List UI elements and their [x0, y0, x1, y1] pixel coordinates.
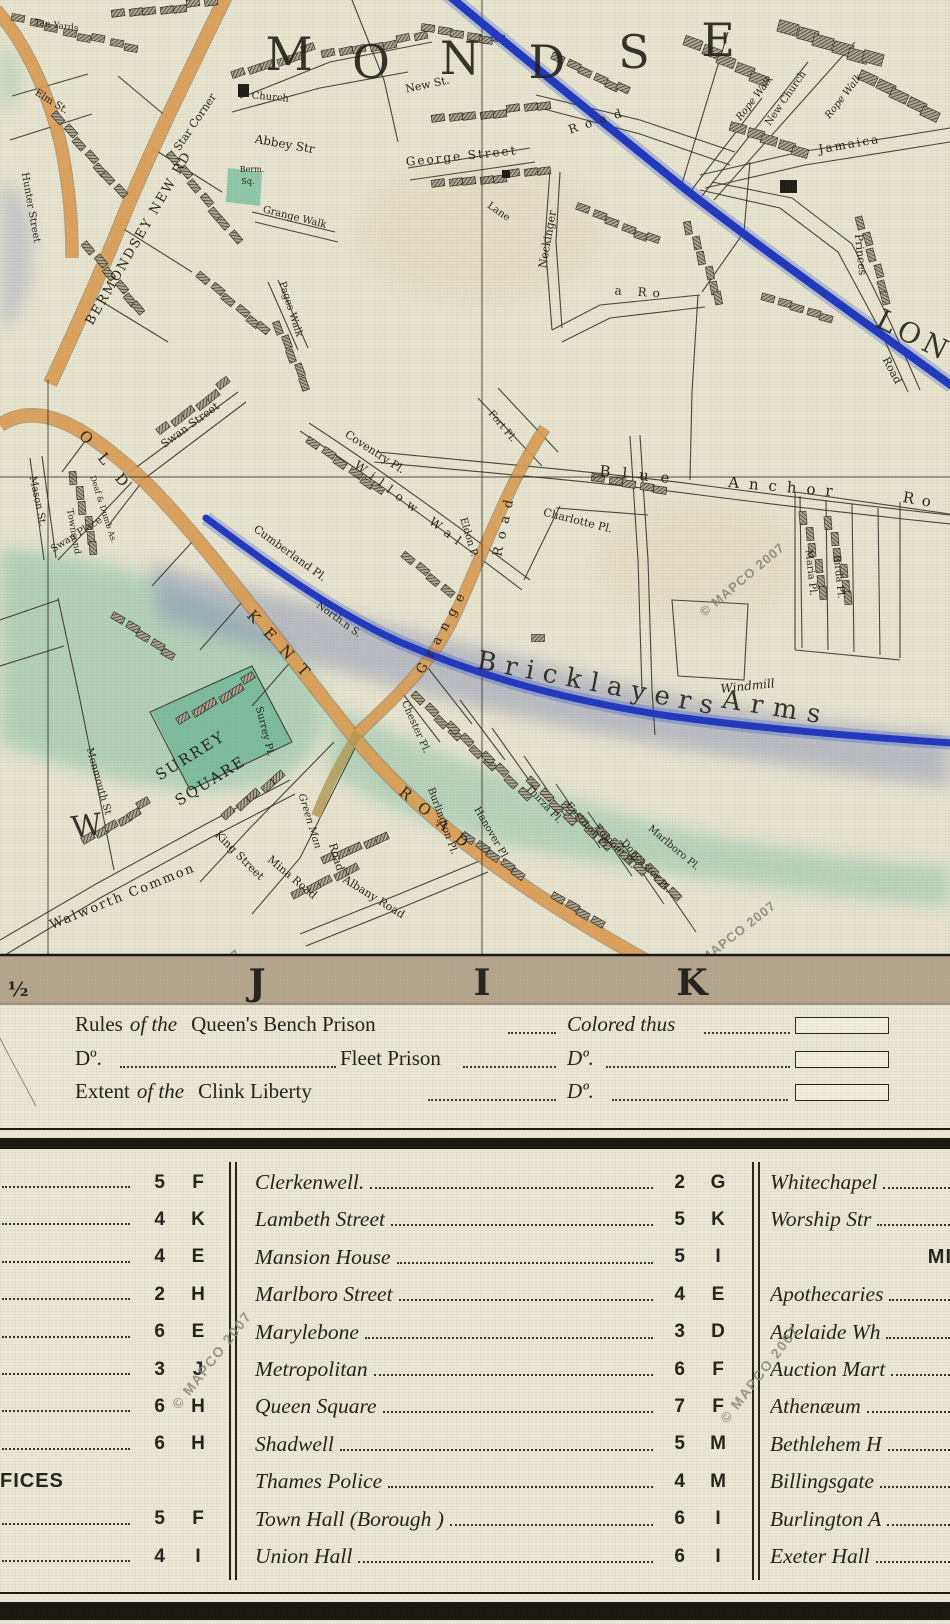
legend-row-0-colored-thus: Colored thus: [567, 1012, 675, 1037]
index-grid-ref-left: 6H: [135, 1426, 231, 1463]
legend-leader: [463, 1048, 556, 1068]
index-name: Town Hall (Borough ): [255, 1501, 655, 1538]
index-misc-header-fragment: MI: [770, 1239, 950, 1276]
index-leader: [877, 1224, 950, 1226]
legend-leader: [612, 1081, 788, 1101]
district-letter-D: D: [529, 35, 566, 89]
index-grid-ref-left: 5F: [135, 1501, 231, 1538]
index-row-5: 3JMetropolitan6FAuction Mart: [0, 1351, 950, 1388]
index-row-9: 5FTown Hall (Borough )6IBurlington A: [0, 1501, 950, 1538]
index-name: Union Hall: [255, 1538, 655, 1575]
index-grid-ref: 5M: [655, 1426, 751, 1463]
legend-leader: [428, 1081, 556, 1101]
index-leader: [891, 1374, 950, 1376]
index-leader: [876, 1561, 950, 1563]
index-leader: [370, 1187, 653, 1189]
building: [421, 24, 435, 33]
map-label-w-big: W: [69, 807, 105, 846]
index-grid-ref-left: 5F: [135, 1164, 231, 1201]
index-left-column-header: FICES: [0, 1463, 64, 1500]
index-name: Marlboro Street: [255, 1276, 655, 1313]
building: [69, 471, 77, 485]
index-name: Mansion House: [255, 1239, 655, 1276]
building: [537, 167, 551, 176]
index-grid-ref: 5I: [655, 1239, 751, 1276]
index-leader: [2, 1172, 130, 1188]
index-leader: [2, 1247, 130, 1263]
legend-row-0-text: Rulesof theQueen's Bench Prison: [75, 1012, 376, 1037]
index-leader: [399, 1299, 653, 1301]
index-name: Thames Police: [255, 1463, 655, 1500]
index-leader: [880, 1486, 950, 1488]
band-letter-I: I: [474, 962, 491, 1004]
index-name-right: Exeter Hall: [770, 1538, 950, 1575]
building: [449, 113, 463, 122]
legend-row-2-colored-thus: Dº.: [567, 1079, 594, 1104]
index-leader: [2, 1546, 130, 1562]
index-row-1: 4KLambeth Street5KWorship Str: [0, 1201, 950, 1238]
index-name-right: Worship Str: [770, 1201, 950, 1238]
index-leader: [374, 1374, 653, 1376]
index-leader: [2, 1396, 130, 1412]
index-grid-ref-left: 4I: [135, 1538, 231, 1575]
index-name-right: Whitechapel: [770, 1164, 950, 1201]
index-name-right: Athenæum: [770, 1388, 950, 1425]
grid-reference-band: JIK½: [0, 955, 950, 1005]
index-grid-ref: 6I: [655, 1501, 751, 1538]
index-name: Metropolitan: [255, 1351, 655, 1388]
solid-building-2: [502, 170, 510, 178]
index-leader: [388, 1486, 653, 1488]
legend-leader: [606, 1048, 790, 1068]
index-leader: [365, 1337, 653, 1339]
index-row-4: 6EMarylebone3DAdelaide Wh: [0, 1314, 950, 1351]
solid-building-1: [780, 180, 797, 193]
building: [524, 168, 538, 177]
building: [462, 177, 476, 186]
building: [799, 511, 807, 525]
building: [89, 541, 97, 555]
building: [76, 486, 84, 500]
legend-color-swatch-2: [795, 1084, 889, 1101]
building: [431, 114, 445, 123]
index-row-6: 6HQueen Square7FAthenæum: [0, 1388, 950, 1425]
legend-row-1-text: Dº.: [75, 1046, 102, 1071]
index-grid-ref: 4E: [655, 1276, 751, 1313]
index-leader: [358, 1561, 653, 1563]
index-top-thick-rule: [0, 1138, 950, 1149]
building: [173, 5, 187, 14]
index-leader: [383, 1411, 653, 1413]
index-row-2: 4EMansion House5IMI: [0, 1239, 950, 1276]
index-leader: [888, 1449, 950, 1451]
building: [78, 501, 86, 515]
legend-leader: [120, 1048, 336, 1068]
building: [524, 103, 538, 112]
band-letter-K: K: [676, 962, 709, 1004]
index-grid-ref: 6I: [655, 1538, 751, 1575]
district-letter-O: O: [352, 35, 390, 89]
building: [129, 8, 143, 17]
index-grid-ref: 5K: [655, 1201, 751, 1238]
index-grid-ref: 3D: [655, 1314, 751, 1351]
index-name-right: Auction Mart: [770, 1351, 950, 1388]
bottom-thick-rule: [0, 1602, 950, 1620]
index-leader: [887, 1524, 950, 1526]
index-name: Lambeth Street: [255, 1201, 655, 1238]
band-letter-J: J: [245, 962, 265, 1004]
index-name-right: Billingsgate: [770, 1463, 950, 1500]
index-row-7: 6HShadwell5MBethlehem H: [0, 1426, 950, 1463]
index-name: Clerkenwell.: [255, 1164, 655, 1201]
index-row-3: 2HMarlboro Street4EApothecaries: [0, 1276, 950, 1313]
building: [111, 9, 125, 18]
index-grid-ref: 6F: [655, 1351, 751, 1388]
index-name-right: Apothecaries: [770, 1276, 950, 1313]
legend-color-swatch-0: [795, 1017, 889, 1034]
index-leader: [2, 1209, 130, 1225]
map-label-berm: Berm.: [240, 165, 265, 174]
index-name-right: Bethlehem H: [770, 1426, 950, 1463]
band-scale-fraction: ½: [8, 977, 29, 1001]
index-leader: [2, 1434, 130, 1450]
building: [493, 110, 507, 119]
legend-row-1-name: Fleet Prison: [340, 1046, 441, 1071]
index-leader: [340, 1449, 653, 1451]
index-row-8: FICESThames Police4MBillingsgate: [0, 1463, 950, 1500]
index-grid-ref-left: 4K: [135, 1201, 231, 1238]
index-leader: [391, 1224, 653, 1226]
district-letter-E: E: [701, 13, 735, 67]
map-label-sq: Sq.: [241, 177, 254, 186]
index-grid-ref: 4M: [655, 1463, 751, 1500]
district-letter-M: M: [265, 27, 312, 81]
building: [506, 104, 520, 113]
index-leader: [2, 1284, 130, 1300]
index-row-0: 5FClerkenwell.2GWhitechapel: [0, 1164, 950, 1201]
building: [431, 179, 445, 188]
map-canvas: MONDSEBERMONDSEY NEW RDStar CornerChurch…: [0, 0, 950, 1005]
building: [831, 532, 839, 546]
index-name: Shadwell: [255, 1426, 655, 1463]
building: [819, 586, 827, 600]
index-grid-ref: 2G: [655, 1164, 751, 1201]
bottom-thin-rule: [0, 1592, 950, 1594]
index-leader: [886, 1337, 950, 1339]
plate-corner-line: [0, 1030, 36, 1106]
legend-color-swatch-1: [795, 1051, 889, 1068]
index-top-thin-rule: [0, 1128, 950, 1130]
legend-row-1-colored-thus: Dº.: [567, 1046, 594, 1071]
building: [532, 635, 545, 642]
index-name-right: Burlington A: [770, 1501, 950, 1538]
building: [160, 6, 174, 15]
index-leader: [867, 1411, 950, 1413]
district-letter-S: S: [618, 25, 650, 79]
index-leader: [2, 1322, 130, 1338]
index-name: Queen Square: [255, 1388, 655, 1425]
solid-building-0: [238, 84, 249, 97]
age-blot-0: [360, 161, 600, 301]
index-leader: [450, 1524, 653, 1526]
building: [824, 516, 832, 530]
index-grid-ref-left: 4E: [135, 1239, 231, 1276]
building: [537, 102, 551, 111]
index-leader: [2, 1359, 130, 1375]
building: [462, 112, 476, 121]
index-row-10: 4IUnion Hall6IExeter Hall: [0, 1538, 950, 1575]
legend-row-2-text: Extentof theClink Liberty: [75, 1079, 312, 1104]
map-sheet: MONDSEBERMONDSEY NEW RDStar CornerChurch…: [0, 0, 950, 1624]
building: [806, 527, 814, 541]
index-leader: [397, 1262, 653, 1264]
index-leader: [889, 1299, 950, 1301]
index-leader: [883, 1187, 950, 1189]
index-grid-ref-left: 2H: [135, 1276, 231, 1313]
building: [653, 486, 667, 495]
index-leader: [2, 1509, 130, 1525]
building: [142, 7, 156, 16]
legend-leader: [704, 1014, 790, 1034]
index-name: Marylebone: [255, 1314, 655, 1351]
building: [449, 178, 463, 187]
legend-leader: [508, 1014, 556, 1034]
